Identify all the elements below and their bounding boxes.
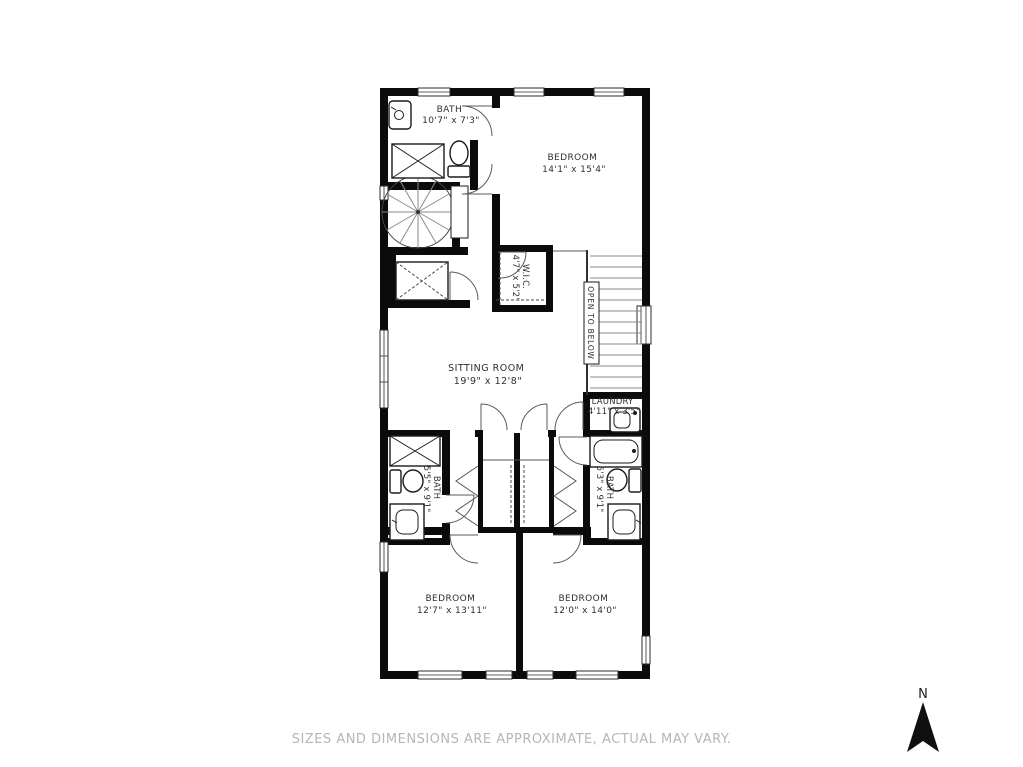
toilet-icon <box>390 470 423 493</box>
svg-text:OPEN TO BELOW: OPEN TO BELOW <box>586 286 595 360</box>
wall-segment <box>553 527 585 535</box>
room-dims: 12'0" x 14'0" <box>553 606 617 616</box>
spiral-staircase <box>382 176 454 248</box>
wall-segment <box>492 96 500 108</box>
wall-segment <box>478 433 483 532</box>
wall-segment <box>478 527 554 533</box>
wall-segment <box>492 245 553 252</box>
room-dims: 4'7" x 5'2" <box>510 255 520 302</box>
window <box>527 671 553 679</box>
bathtub-icon <box>590 436 642 467</box>
window <box>418 88 450 96</box>
bath-upper-label: BATH 10'7" x 7'3" <box>422 105 480 126</box>
room-name: BEDROOM <box>547 153 597 163</box>
room-dims: 5'5" x 9'1" <box>421 466 431 513</box>
wall-segment <box>642 88 650 679</box>
shower-icon <box>390 436 440 466</box>
room-name: OPEN TO BELOW <box>586 286 595 360</box>
bifold-door <box>456 496 478 526</box>
room-dims: 10'7" x 7'3" <box>422 116 480 126</box>
bedroom-upper-label: BEDROOM 14'1" x 15'4" <box>542 153 606 175</box>
bath-left-label: BATH 5'5" x 9'1" <box>421 466 441 513</box>
north-arrow-icon <box>907 702 939 752</box>
north-label: N <box>918 687 928 702</box>
room-name: BEDROOM <box>425 594 475 604</box>
window <box>642 636 650 664</box>
door-arc <box>450 535 478 563</box>
door-arc <box>450 272 478 300</box>
room-name: W.I.C. <box>520 264 530 289</box>
window <box>380 330 388 408</box>
elevator <box>396 262 448 300</box>
sitting-room-label: SITTING ROOM 19'9" x 12'8" <box>448 363 528 387</box>
wall-segment <box>380 182 460 190</box>
door-arc <box>555 402 583 430</box>
floorplan-page: { "page": { "background": "#ffffff" }, "… <box>0 0 1023 767</box>
room-name: BATH <box>431 476 441 499</box>
room-name: BEDROOM <box>558 594 608 604</box>
compass: N <box>907 687 939 752</box>
room-name: SITTING ROOM <box>448 363 524 374</box>
door-arc <box>553 535 581 563</box>
sink-icon <box>608 504 641 540</box>
svg-text:BATH 5'5" x 9'1": BATH 5'5" x 9'1" <box>421 466 441 513</box>
door-arc <box>481 404 507 430</box>
floorplan-drawing: BATH 10'7" x 7'3" BEDROOM 14'1" x 15'4" … <box>0 0 1023 767</box>
room-dims: 14'1" x 15'4" <box>542 165 606 175</box>
svg-text:W.I.C. 4'7" x 5'2": W.I.C. 4'7" x 5'2" <box>510 255 530 302</box>
bifold-door <box>554 496 576 526</box>
wall-segment <box>380 255 396 303</box>
room-dims: 4'11" x 3'5" <box>588 407 640 417</box>
bedroom-right-label: BEDROOM 12'0" x 14'0" <box>553 594 617 616</box>
window <box>380 542 388 572</box>
wall-segment <box>549 433 554 532</box>
window <box>486 671 512 679</box>
window <box>637 306 651 344</box>
window <box>594 88 624 96</box>
wall-segment <box>492 305 553 312</box>
window <box>514 88 544 96</box>
toilet-icon <box>448 141 470 177</box>
wall-segment <box>380 300 470 308</box>
disclaimer-text: SIZES AND DIMENSIONS ARE APPROXIMATE, AC… <box>292 732 732 747</box>
window <box>576 671 618 679</box>
wall-segment <box>380 247 468 255</box>
door-arc <box>559 437 587 465</box>
open-below-label: OPEN TO BELOW <box>586 286 595 360</box>
room-dims: 19'9" x 12'8" <box>454 376 522 387</box>
wall-segment <box>546 245 553 312</box>
bifold-door <box>456 466 478 496</box>
wall-segment <box>514 433 520 532</box>
bedroom-left-label: BEDROOM 12'7" x 13'11" <box>417 594 487 616</box>
room-dims: 12'7" x 13'11" <box>417 606 487 616</box>
wall-segment <box>583 527 591 545</box>
wall-segment <box>470 140 478 190</box>
bifold-door <box>554 466 576 496</box>
room-name: LAUNDRY <box>592 397 634 407</box>
sink-icon <box>389 101 411 129</box>
laundry-label: LAUNDRY 4'11" x 3'5" <box>588 397 640 417</box>
door-arc <box>446 495 474 523</box>
wall-segment <box>492 194 500 252</box>
window <box>418 671 462 679</box>
wall-segment <box>516 533 523 679</box>
room-name: BATH <box>604 476 614 499</box>
room-dims: 5'3" x 9'1" <box>594 466 604 513</box>
wic-label: W.I.C. 4'7" x 5'2" <box>510 255 530 302</box>
door-arc <box>521 404 547 430</box>
sink-icon <box>390 504 424 540</box>
wall-segment <box>442 430 450 495</box>
window <box>380 186 388 200</box>
stairwell <box>553 250 642 395</box>
room-name: BATH <box>437 105 463 115</box>
shower-icon <box>392 144 444 178</box>
